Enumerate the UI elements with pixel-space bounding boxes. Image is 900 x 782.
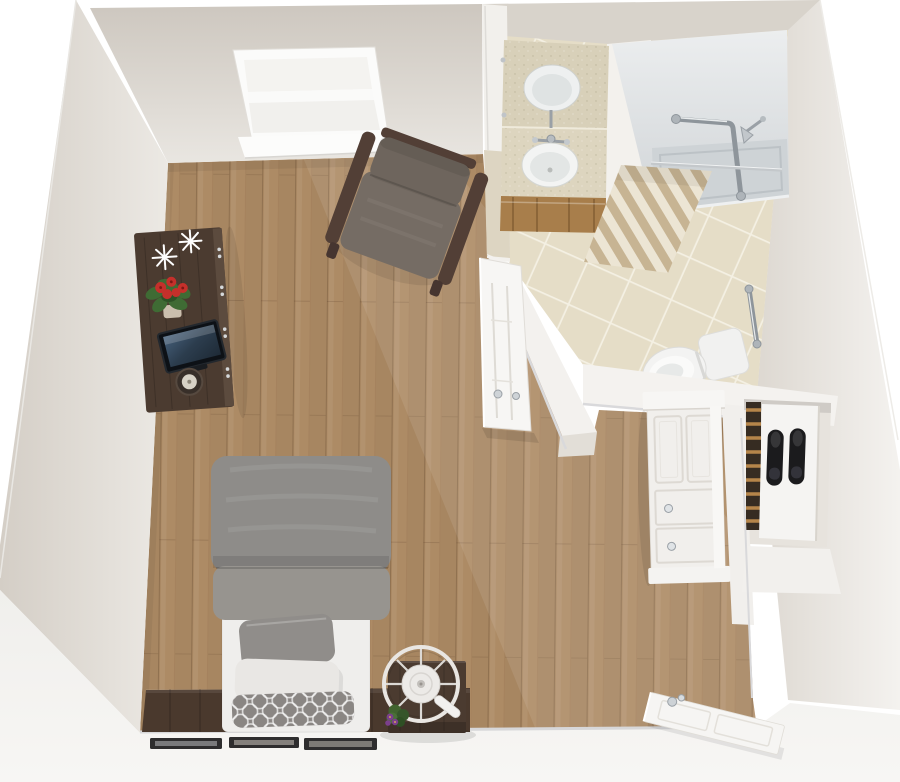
vanity [500,40,609,233]
faucet-base [547,135,555,143]
fan-hub-dot [420,683,423,686]
door-knob [513,393,520,400]
drawer-knob [667,542,675,550]
faucet-handle [564,139,570,145]
table-lamp [175,368,203,396]
bloom-center [394,721,396,723]
grab-bar-flange [737,192,746,201]
grab-bar-flange [672,115,681,124]
faucet-handle [532,137,538,143]
door-knob [494,390,502,398]
shoe-heel [769,467,780,479]
dresser-base [648,566,730,584]
sink-basin [530,152,570,182]
door-hinge [502,113,507,118]
shower-head-mount [760,116,766,122]
mirror-sink-basin [532,74,572,106]
grab-bar-flange [753,340,761,348]
nightstand [380,647,476,743]
window-upper-pane [244,57,372,92]
duvet-fold [213,566,390,620]
trellis-pattern [231,691,354,728]
wall-frame-inner [234,740,294,745]
grab-bar-flange [745,285,753,293]
door-hinge [501,58,506,63]
wall-frame-inner [309,741,372,747]
white-dresser [636,390,731,586]
floorplan-canvas [0,0,900,782]
drawer-knob [664,504,672,512]
wall-frame-inner [155,741,217,746]
duvet [211,456,391,572]
cubby-south-wall [742,546,841,594]
bloom-center [389,716,391,718]
sink-drain [548,168,553,173]
shoe-cubby [742,399,841,594]
window-lower-pane [249,100,380,133]
bed [211,456,391,732]
trellis-pillow [231,691,354,728]
floor-plan-3d-render [0,0,900,782]
shoe-heel [791,466,802,478]
